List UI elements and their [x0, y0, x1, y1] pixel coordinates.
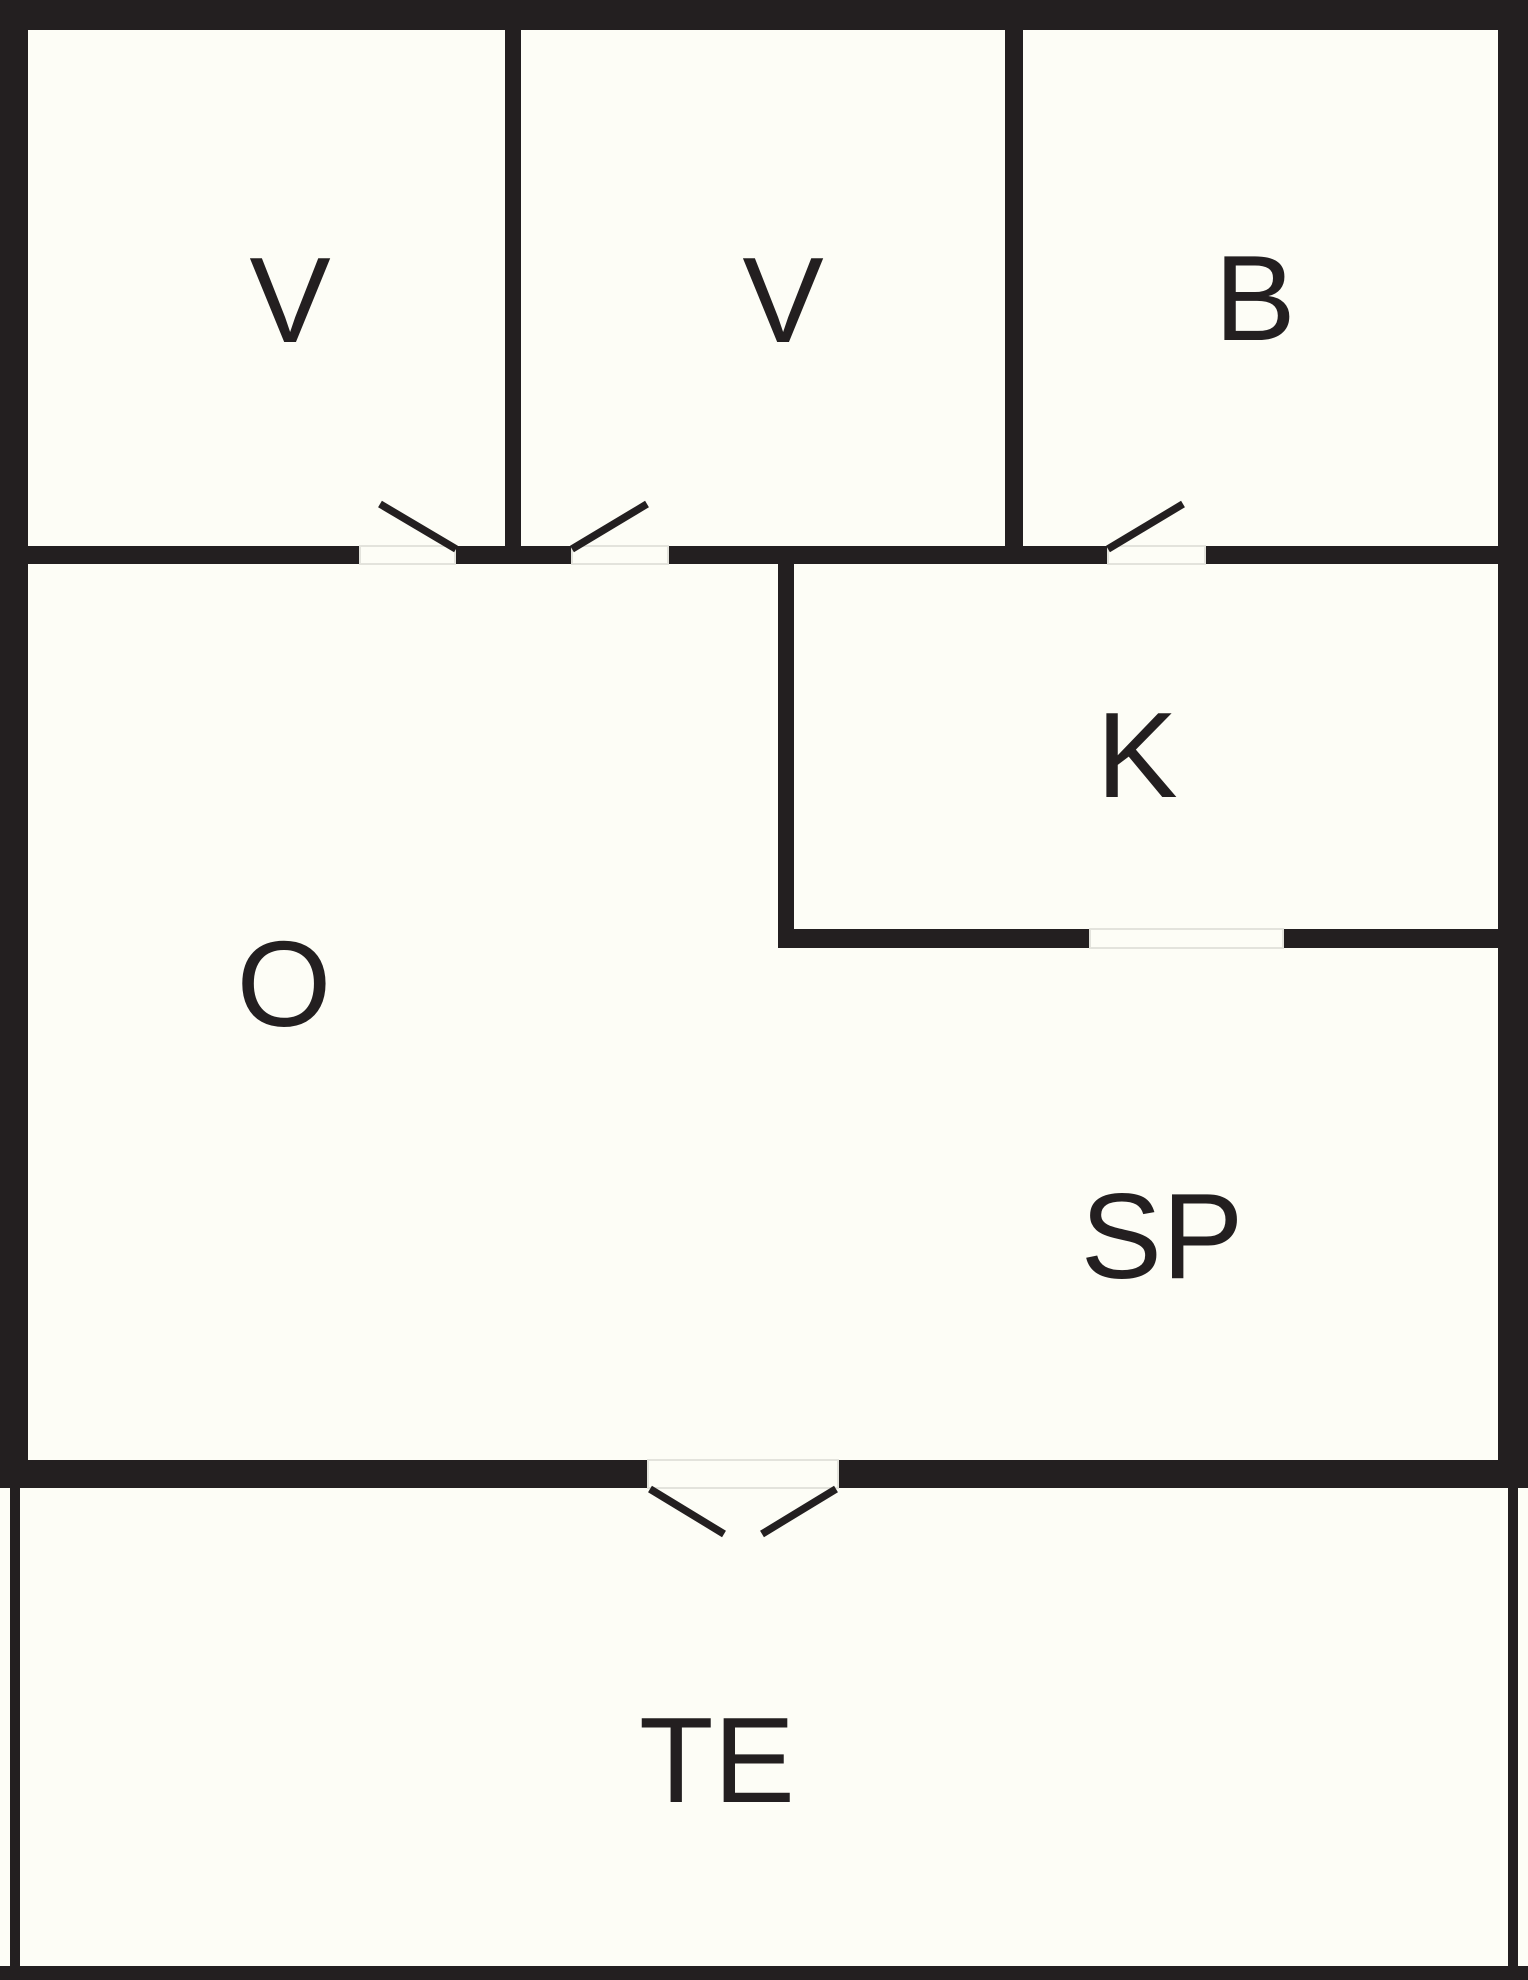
room-label-kitchen: K [1096, 687, 1177, 823]
wall-divider-v1-v2 [505, 30, 521, 546]
room-label-living-room: O [237, 916, 332, 1052]
wall-outer-right [1498, 0, 1528, 1488]
room-label-dining-area: SP [1081, 1168, 1244, 1304]
wall-toprow-bottom-a [28, 546, 360, 564]
wall-outer-left [0, 0, 28, 1488]
floor-plan-svg: VVBKOSPTE [0, 0, 1528, 1980]
wall-terrace-right [1508, 1488, 1518, 1968]
door-opening-terrace [648, 1460, 838, 1488]
wall-terrace-left [10, 1488, 20, 1980]
floor-plan: VVBKOSPTE [0, 0, 1528, 1980]
door-opening-bedroom-1 [360, 546, 455, 564]
wall-divider-v2-b [1005, 30, 1023, 546]
wall-toprow-bottom-d [1205, 546, 1528, 564]
wall-toprow-bottom-c [668, 546, 1108, 564]
door-opening-kitchen [1090, 929, 1283, 948]
wall-main-bottom-left [0, 1460, 648, 1488]
door-opening-bathroom [1108, 546, 1205, 564]
room-label-bedroom-1: V [249, 232, 330, 368]
wall-terrace-bottom [0, 1966, 1528, 1980]
wall-kitchen-bottom-right [1283, 929, 1528, 948]
room-label-bathroom: B [1214, 230, 1295, 366]
wall-kitchen-bottom-left [778, 929, 1090, 948]
room-label-bedroom-2: V [742, 232, 823, 368]
wall-outer-top [0, 0, 1528, 30]
wall-main-bottom-right [838, 1460, 1528, 1488]
room-label-terrace: TE [639, 1692, 795, 1828]
wall-kitchen-left [778, 546, 794, 948]
wall-toprow-bottom-b [455, 546, 572, 564]
door-opening-bedroom-2 [572, 546, 668, 564]
